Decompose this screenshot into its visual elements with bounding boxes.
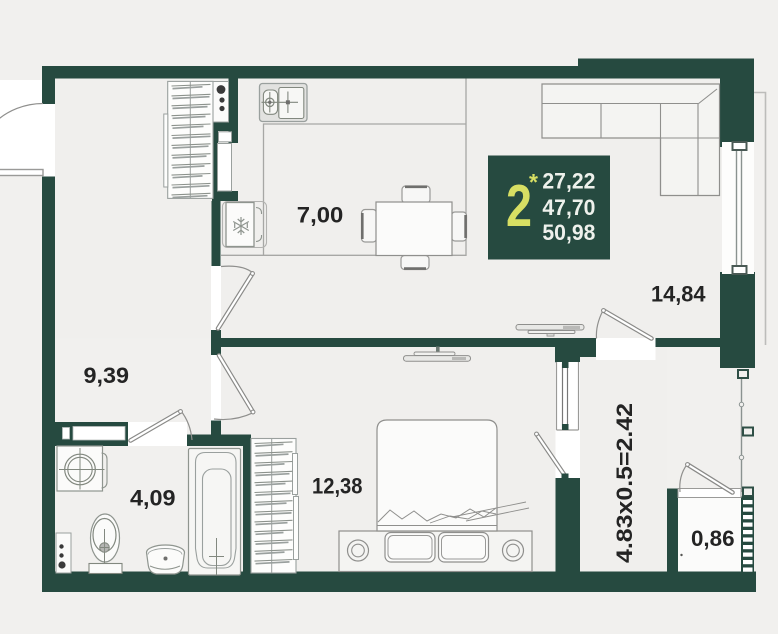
svg-text:50,98: 50,98 xyxy=(542,220,595,245)
svg-text:4.83х0.5=2.42: 4.83х0.5=2.42 xyxy=(612,403,637,563)
svg-text:4,09: 4,09 xyxy=(130,486,176,511)
svg-text:9,39: 9,39 xyxy=(84,363,130,388)
svg-text:14,84: 14,84 xyxy=(651,282,706,307)
svg-text:7,00: 7,00 xyxy=(297,203,344,228)
svg-text:47,70: 47,70 xyxy=(542,195,595,220)
svg-text:0,86: 0,86 xyxy=(691,526,735,551)
svg-text:12,38: 12,38 xyxy=(312,474,363,499)
svg-text:*: * xyxy=(529,169,538,195)
svg-text:27,22: 27,22 xyxy=(542,169,595,194)
